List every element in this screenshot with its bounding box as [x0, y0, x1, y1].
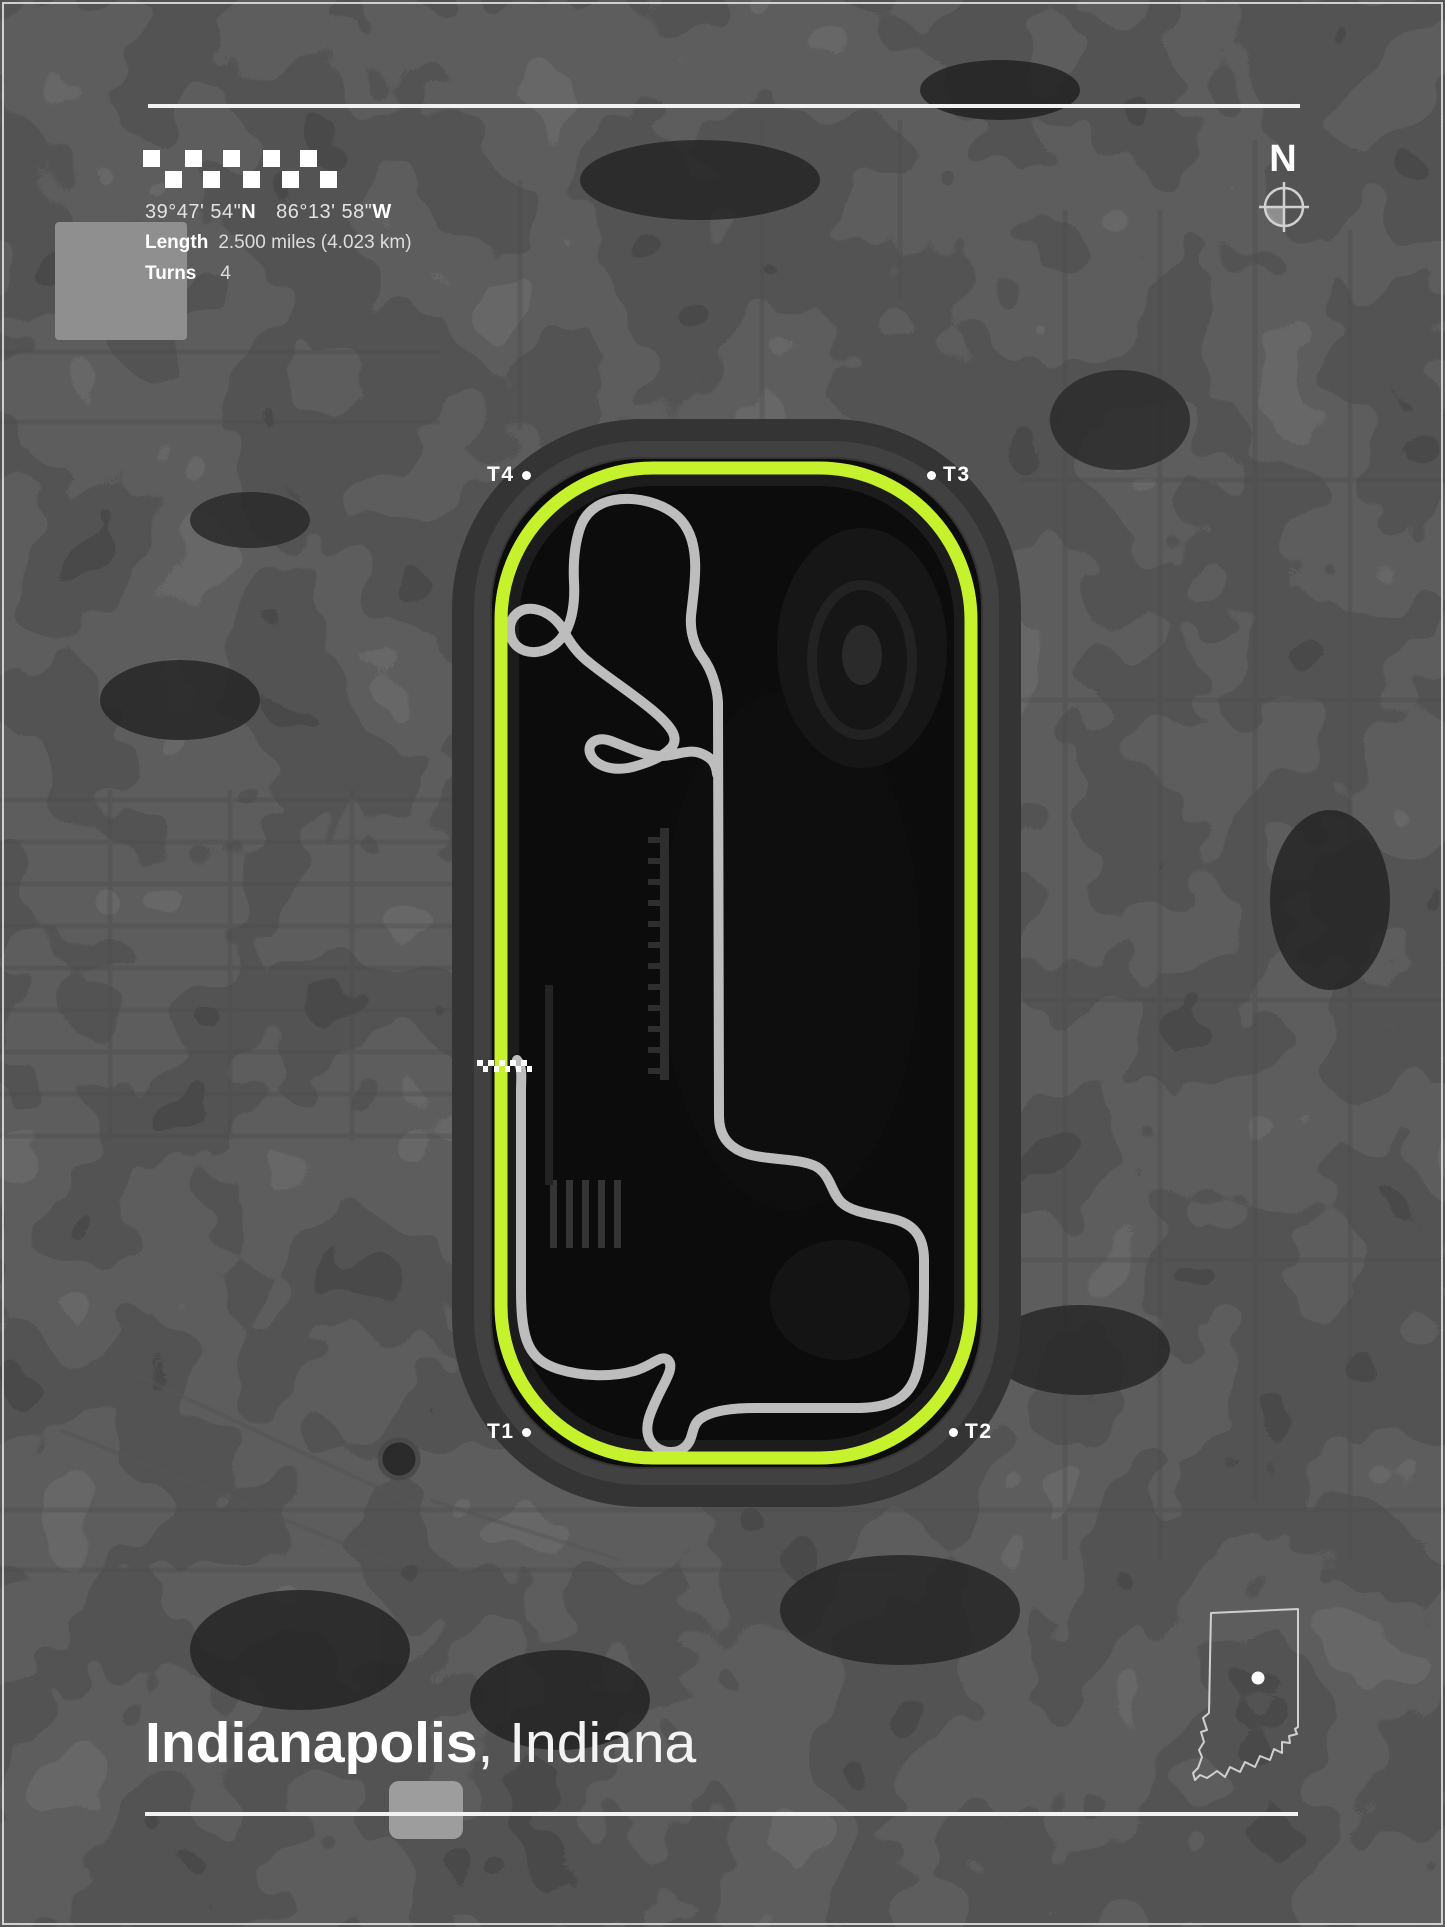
- turns-label: Turns: [145, 263, 196, 284]
- page-title: Indianapolis, Indiana: [145, 1714, 696, 1774]
- checker-square: [510, 1060, 516, 1066]
- turn-dot: [522, 1428, 531, 1437]
- footer-rule: [145, 1812, 1298, 1816]
- turn-dot: [949, 1428, 958, 1437]
- track-poster: 39°47' 54"N86°13' 58"W Length2.500 miles…: [0, 0, 1445, 1927]
- latitude-value: 39°47' 54": [145, 201, 241, 223]
- turn-label: T2: [965, 1420, 993, 1444]
- checker-square: [499, 1060, 505, 1066]
- turn-dot: [522, 471, 531, 480]
- turn-marker-t1: T1: [487, 1420, 531, 1444]
- checker-square: [320, 171, 337, 188]
- title-region: , Indiana: [478, 1711, 697, 1775]
- header-checkered-flag: [143, 150, 343, 190]
- checker-square: [505, 1066, 511, 1072]
- checker-square: [488, 1060, 494, 1066]
- header-rule: [148, 104, 1300, 108]
- length-value: 2.500 miles (4.023 km): [218, 232, 411, 253]
- light-block-bottom: [389, 1781, 463, 1839]
- checker-square: [300, 150, 317, 167]
- length-label: Length: [145, 232, 208, 253]
- latitude-hemisphere: N: [241, 201, 256, 223]
- checker-square: [243, 171, 260, 188]
- longitude-value: 86°13' 58": [276, 201, 372, 223]
- checker-square: [165, 171, 182, 188]
- turns-value: 4: [220, 263, 231, 284]
- title-city: Indianapolis: [145, 1711, 478, 1775]
- turn-marker-t2: T2: [949, 1420, 993, 1444]
- turn-marker-t4: T4: [487, 463, 531, 487]
- length-stat: Length2.500 miles (4.023 km): [145, 232, 412, 254]
- city-location-dot: [1252, 1672, 1265, 1685]
- checker-square: [282, 171, 299, 188]
- checker-square: [516, 1066, 522, 1072]
- checker-square: [203, 171, 220, 188]
- checker-square: [263, 150, 280, 167]
- checker-square: [223, 150, 240, 167]
- turn-label: T3: [943, 463, 971, 487]
- indiana-state-outline: [1186, 1600, 1306, 1790]
- checker-square: [185, 150, 202, 167]
- compass-north-label: N: [1260, 138, 1306, 181]
- longitude-hemisphere: W: [372, 201, 391, 223]
- turn-dot: [927, 471, 936, 480]
- turn-label: T4: [487, 463, 515, 487]
- checker-square: [521, 1060, 527, 1066]
- checker-square: [483, 1066, 489, 1072]
- turn-marker-t3: T3: [927, 463, 971, 487]
- checker-square: [494, 1066, 500, 1072]
- startfinish-line: [477, 1060, 535, 1074]
- checker-square: [143, 150, 160, 167]
- checker-square: [527, 1066, 533, 1072]
- compass-icon: [1258, 180, 1310, 234]
- checker-square: [477, 1060, 483, 1066]
- turns-stat: Turns4: [145, 263, 231, 285]
- turn-label: T1: [487, 1420, 515, 1444]
- roundabout: [380, 1440, 418, 1478]
- coordinates: 39°47' 54"N86°13' 58"W: [145, 201, 392, 224]
